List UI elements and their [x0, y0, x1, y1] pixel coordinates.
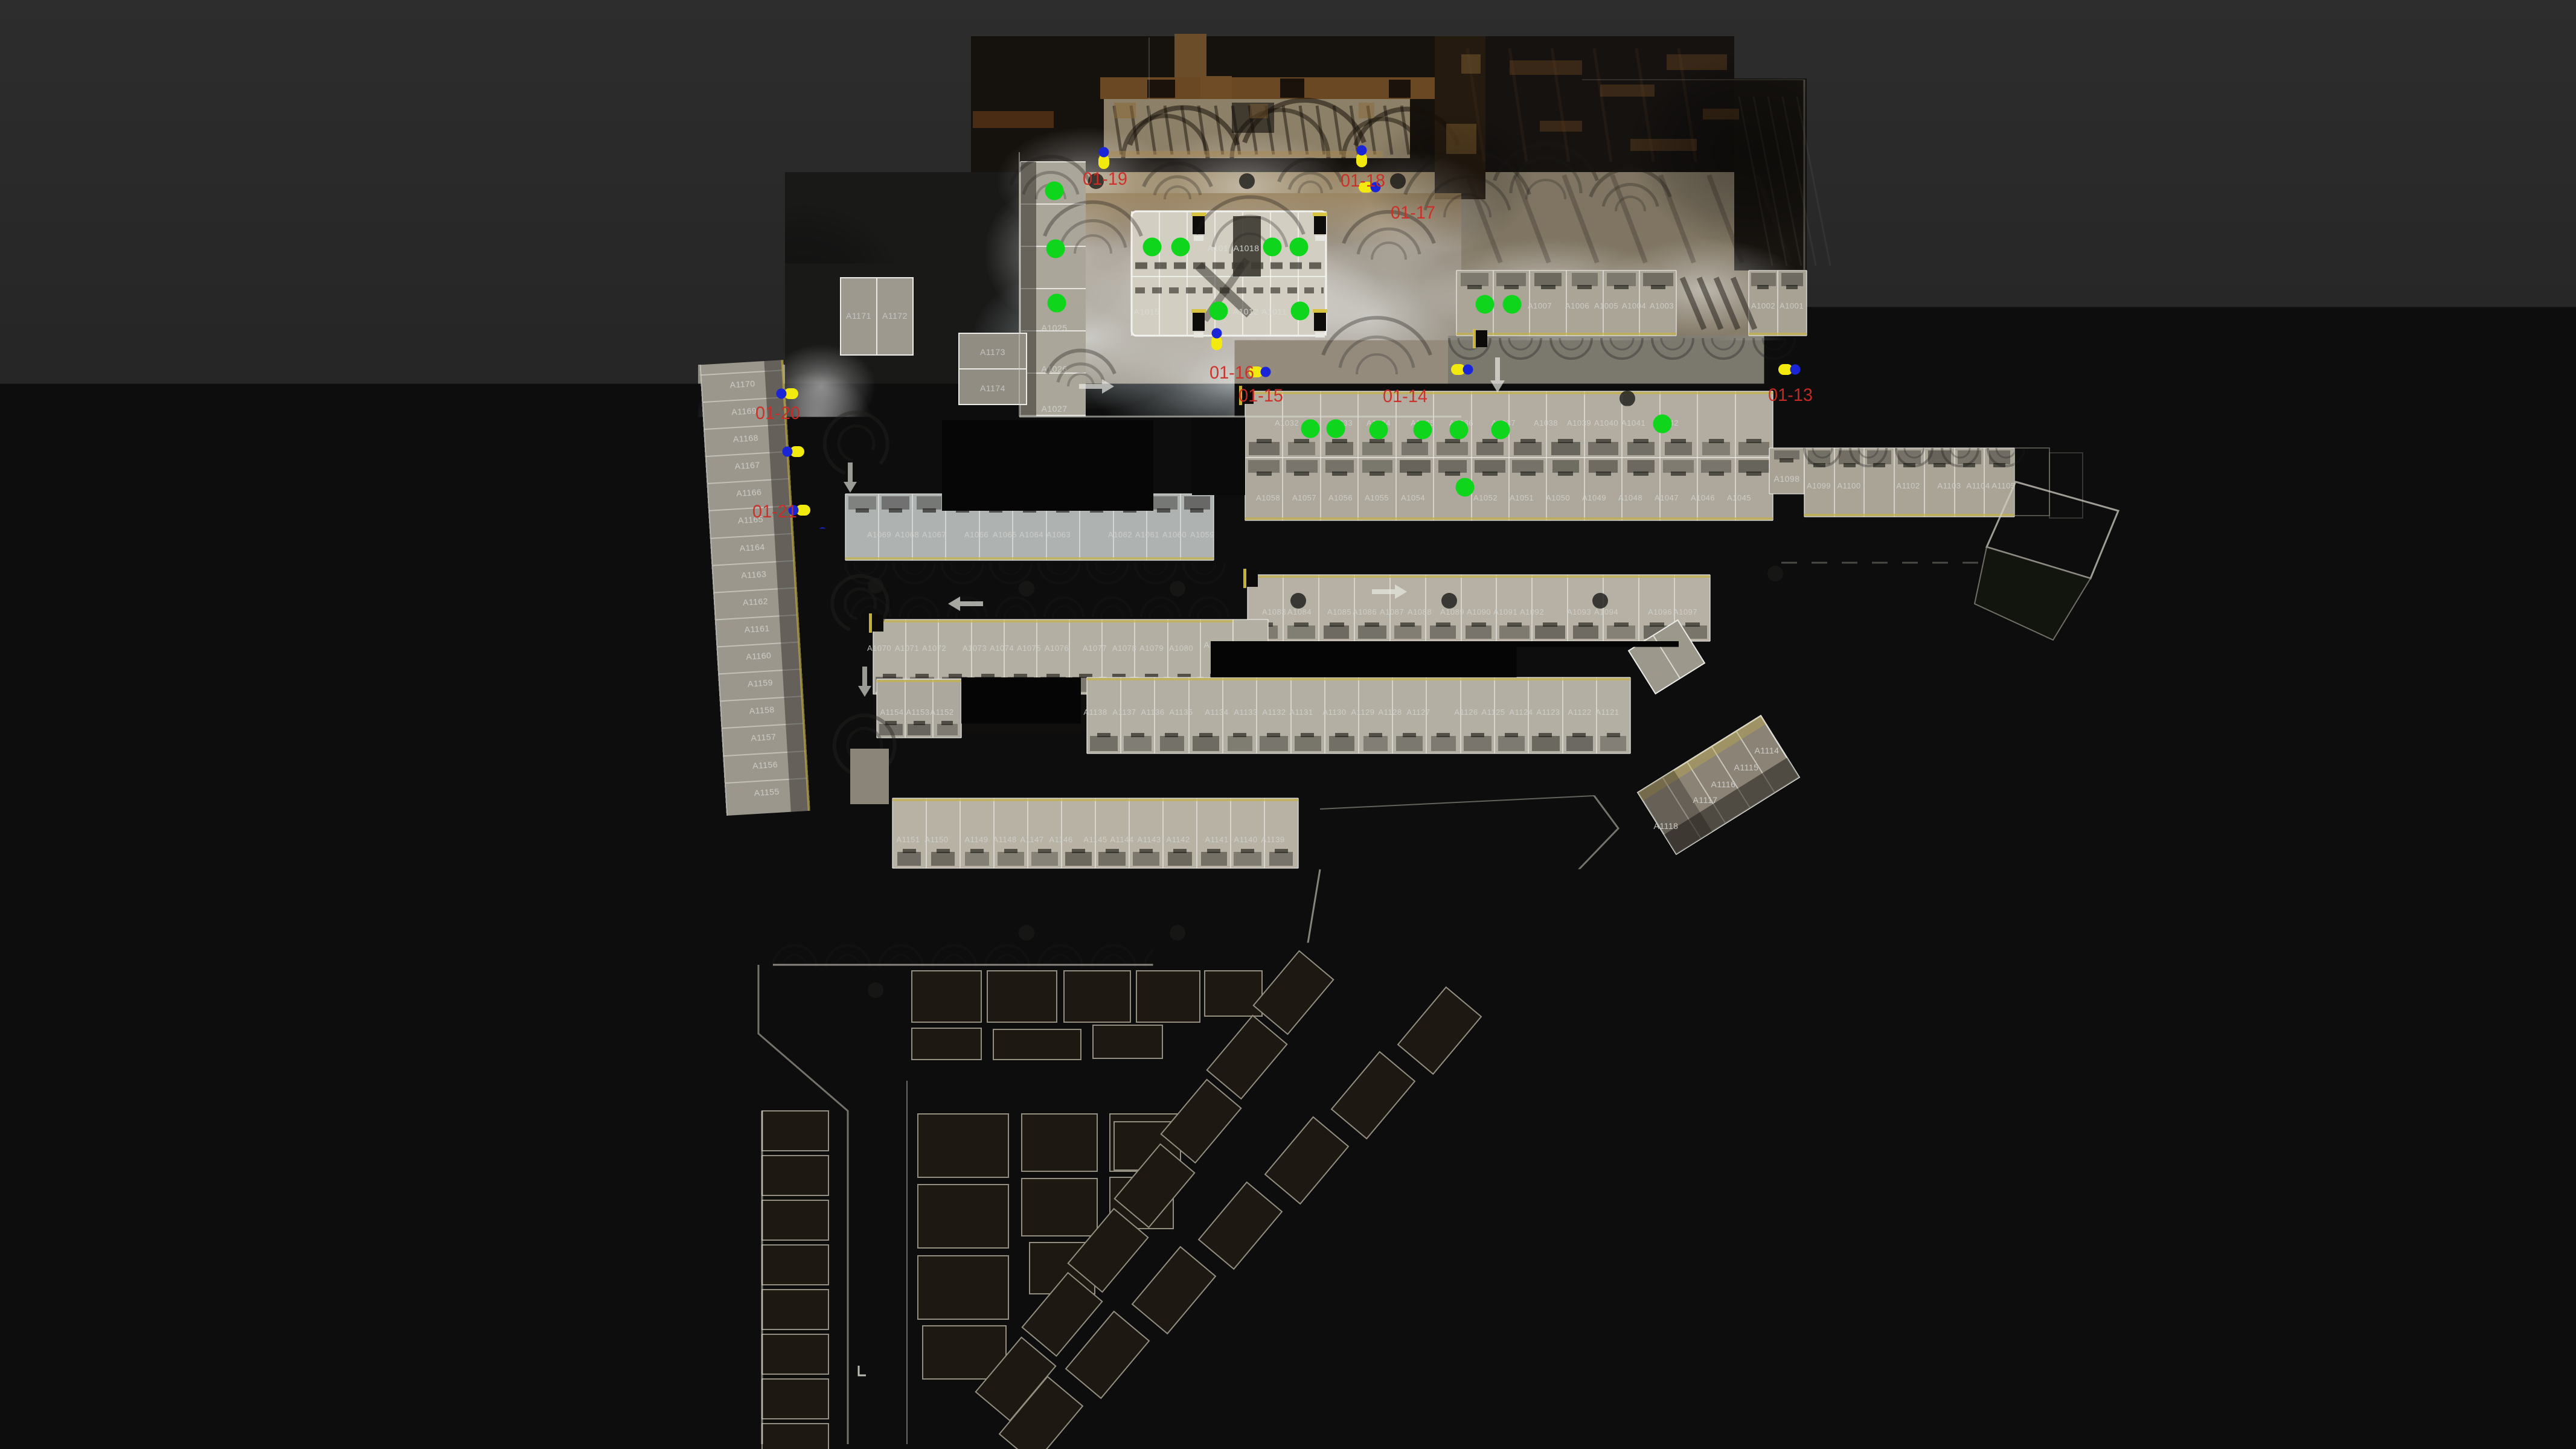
svg-text:01-04: 01-04	[1058, 784, 1103, 804]
svg-text:01-19: 01-19	[1083, 169, 1127, 189]
svg-text:01-21: 01-21	[752, 502, 797, 522]
svg-text:01-13: 01-13	[1768, 385, 1813, 405]
svg-text:01-05: 01-05	[786, 788, 830, 808]
svg-text:05-26: 05-26	[797, 549, 842, 569]
svg-text:01-07: 01-07	[959, 606, 1004, 626]
svg-text:01-17: 01-17	[1391, 203, 1435, 223]
svg-text:01-01: 01-01	[1718, 739, 1763, 759]
svg-text:01-12: 01-12	[1722, 525, 1766, 545]
svg-text:01-06: 01-06	[807, 648, 851, 668]
svg-text:01-18: 01-18	[1341, 171, 1385, 191]
svg-text:01-20: 01-20	[755, 403, 800, 423]
svg-text:A1113: A1113	[1803, 703, 1828, 713]
svg-text:01-14: 01-14	[1383, 386, 1427, 406]
svg-text:01-22: 01-22	[761, 526, 806, 546]
svg-text:01-16: 01-16	[1210, 363, 1254, 383]
svg-text:01-09: 01-09	[1220, 565, 1265, 584]
svg-text:01-11: 01-11	[1746, 576, 1790, 596]
svg-text:01-03: 01-03	[1298, 785, 1343, 805]
svg-text:01-08: 01-08	[1077, 606, 1121, 626]
svg-text:01-02: 01-02	[1578, 825, 1623, 845]
svg-text:01-10: 01-10	[1458, 563, 1503, 583]
svg-text:01-15: 01-15	[1238, 386, 1283, 406]
